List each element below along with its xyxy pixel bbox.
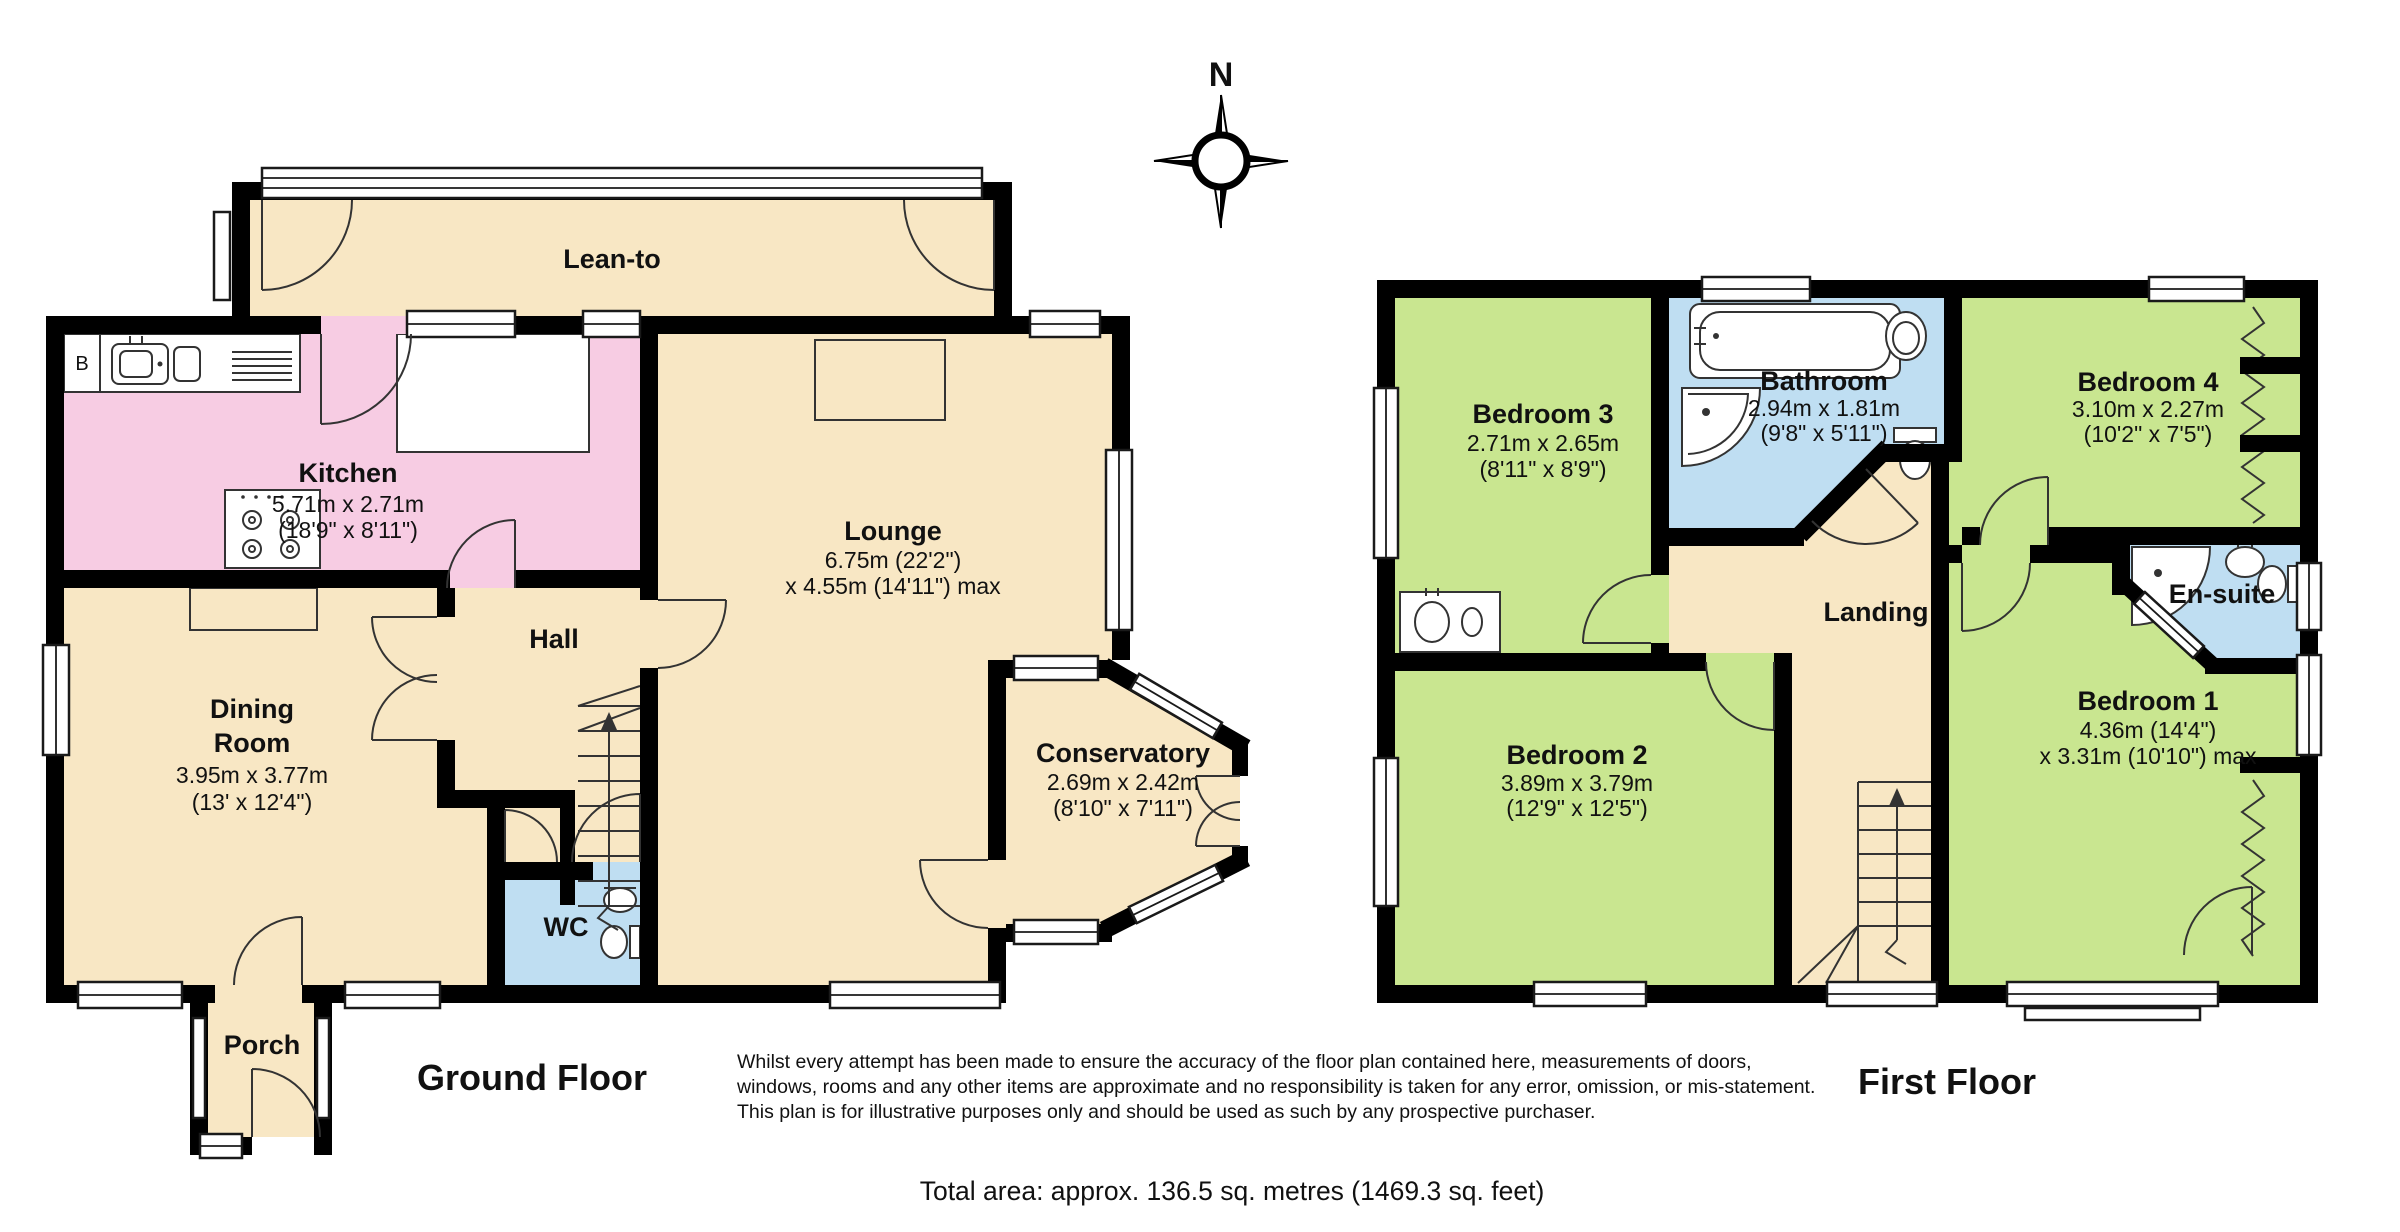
svg-text:4.36m (14'4"): 4.36m (14'4") <box>2080 717 2217 743</box>
kitchen-sink-counter <box>100 334 300 392</box>
svg-text:3.89m x 3.79m: 3.89m x 3.79m <box>1501 770 1653 796</box>
room-label-bedroom4: Bedroom 4 <box>2077 367 2218 397</box>
total-area-text: Total area: approx. 136.5 sq. metres (14… <box>920 1176 1545 1206</box>
room-label-lean-to: Lean-to <box>563 244 661 274</box>
svg-text:5.71m x 2.71m: 5.71m x 2.71m <box>272 491 424 517</box>
svg-text:x 3.31m (10'10") max: x 3.31m (10'10") max <box>2039 743 2257 769</box>
ground-floor-title: Ground Floor <box>417 1057 647 1098</box>
first-floor-plan: Bedroom 3 2.71m x 2.65m (8'11" x 8'9") B… <box>1374 277 2321 1020</box>
room-label-hall: Hall <box>529 624 579 654</box>
svg-text:2.69m x 2.42m: 2.69m x 2.42m <box>1047 769 1199 795</box>
svg-text:This plan is for illustrative: This plan is for illustrative purposes o… <box>737 1101 1595 1123</box>
room-label-bedroom1: Bedroom 1 <box>2077 686 2218 716</box>
svg-text:3.10m x 2.27m: 3.10m x 2.27m <box>2072 396 2224 422</box>
room-label-bedroom3: Bedroom 3 <box>1472 399 1613 429</box>
room-label-conservatory: Conservatory <box>1036 738 1210 768</box>
svg-text:6.75m (22'2"): 6.75m (22'2") <box>825 547 962 573</box>
svg-text:2.71m x 2.65m: 2.71m x 2.65m <box>1467 430 1619 456</box>
svg-text:2.94m x 1.81m: 2.94m x 1.81m <box>1748 395 1900 421</box>
room-label-dining: Dining <box>210 694 294 724</box>
disclaimer-text: Whilst every attempt has been made to en… <box>736 1051 1815 1123</box>
svg-text:(18'9" x 8'11"): (18'9" x 8'11") <box>278 517 418 543</box>
svg-text:(13' x 12'4"): (13' x 12'4") <box>192 789 313 815</box>
floor-plan-drawing: Lean-to Kitchen 5.71m x 2.71m (18'9" x 8… <box>0 0 2400 1232</box>
svg-text:(10'2" x 7'5"): (10'2" x 7'5") <box>2084 421 2213 447</box>
compass-north-label: N <box>1209 56 1234 94</box>
compass-icon: N <box>1154 56 1288 228</box>
ground-floor-plan: Lean-to Kitchen 5.71m x 2.71m (18'9" x 8… <box>43 168 1246 1158</box>
room-label-bedroom2: Bedroom 2 <box>1506 740 1647 770</box>
room-label-porch: Porch <box>224 1030 301 1060</box>
room-label-kitchen: Kitchen <box>298 458 397 488</box>
svg-text:windows, rooms and any other i: windows, rooms and any other items are a… <box>736 1076 1815 1098</box>
room-label-bathroom: Bathroom <box>1760 366 1888 396</box>
svg-text:(8'11" x 8'9"): (8'11" x 8'9") <box>1480 456 1607 482</box>
svg-text:Room: Room <box>214 728 291 758</box>
floor-plan-page: Lean-to Kitchen 5.71m x 2.71m (18'9" x 8… <box>0 0 2400 1232</box>
room-label-lounge: Lounge <box>844 516 941 546</box>
room-label-landing: Landing <box>1824 597 1929 627</box>
svg-text:Whilst every attempt has been: Whilst every attempt has been made to en… <box>737 1051 1752 1073</box>
room-label-wc: WC <box>544 912 589 942</box>
svg-text:(8'10" x 7'11"): (8'10" x 7'11") <box>1053 795 1193 821</box>
room-label-ensuite: En-suite <box>2169 579 2276 609</box>
kitchen-worktop <box>397 334 589 452</box>
first-floor-title: First Floor <box>1858 1061 2036 1102</box>
svg-text:3.95m x 3.77m: 3.95m x 3.77m <box>176 762 328 788</box>
svg-text:(9'8" x 5'11"): (9'8" x 5'11") <box>1761 420 1888 446</box>
bedroom3-basin <box>1400 588 1500 652</box>
svg-text:x 4.55m (14'11") max: x 4.55m (14'11") max <box>785 573 1001 599</box>
boiler-label: B <box>75 353 88 375</box>
svg-text:(12'9" x 12'5"): (12'9" x 12'5") <box>1506 795 1647 821</box>
bedroom2-floor <box>1395 671 1774 985</box>
